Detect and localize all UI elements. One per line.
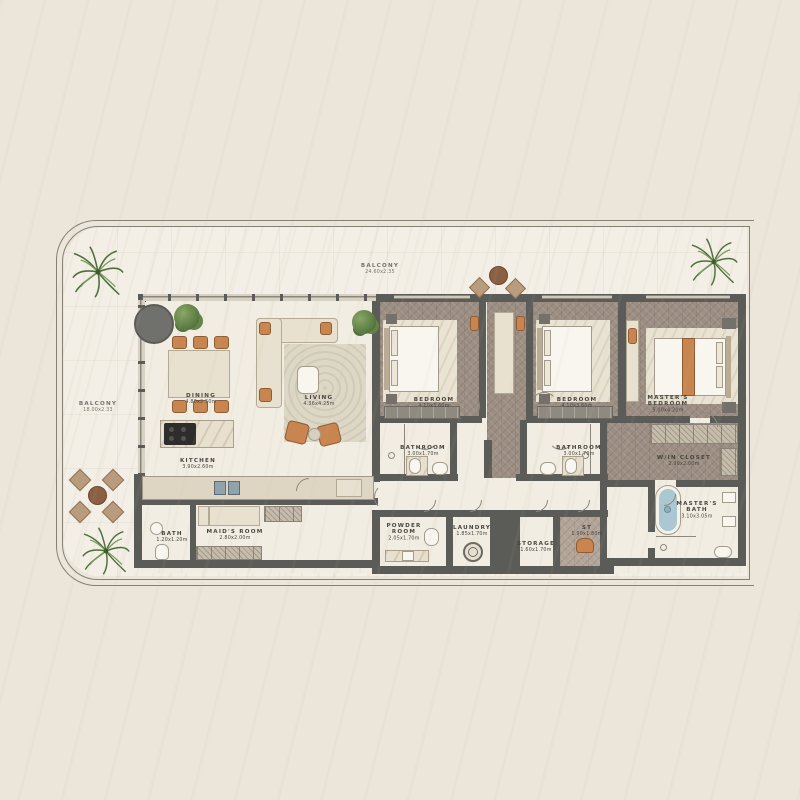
maid-wardrobe: [196, 546, 262, 560]
room-dims: 24.60x2.35: [340, 269, 420, 275]
shower-glass: [656, 536, 696, 537]
toilet: [714, 546, 732, 558]
room-name: ST: [547, 524, 627, 530]
hall-console: [494, 312, 514, 394]
wall-bottom-left: [134, 560, 378, 568]
bedroom-1-window: [394, 295, 470, 299]
dining-chair: [214, 336, 229, 349]
pillow: [716, 342, 723, 364]
pillow: [716, 366, 723, 388]
maid-closet: [264, 506, 302, 522]
kitchen-sink: [214, 481, 226, 495]
maid-bath-toilet: [155, 544, 169, 560]
balcony-table: [489, 266, 508, 285]
palm-plant-icon: [72, 246, 124, 298]
wall-maid-left: [134, 474, 142, 568]
room-dims: 4.10x3.60m: [537, 403, 617, 409]
door-arc: [374, 484, 400, 510]
cooktop: [164, 423, 196, 445]
room-name: BALCONY: [58, 400, 138, 406]
room-name: MAID'S ROOM: [195, 528, 275, 534]
wall-bath2-left: [520, 420, 527, 478]
room-name: W/IN CLOSET: [644, 454, 724, 460]
balcony-top-label: BALCONY 24.60x2.35: [340, 262, 420, 275]
toilet: [432, 462, 448, 475]
dining-chair: [172, 336, 187, 349]
room-dims: 3.00x1.70m: [383, 451, 463, 457]
sink: [565, 458, 577, 474]
wall-corridor-mid: [484, 440, 492, 478]
kitchen-sink: [228, 481, 240, 495]
dining-chair: [193, 336, 208, 349]
room-name: KITCHEN: [158, 457, 238, 463]
wall-bed1-right: [479, 300, 486, 418]
coffee-table: [297, 366, 319, 394]
laundry-label: LAUNDRY 1.85x1.70m: [432, 524, 512, 537]
pillow: [391, 360, 398, 386]
floor-plan: BALCONY 24.60x2.35 BALCONY 18.00x2.33 DI…: [0, 0, 800, 800]
wall-bed2-right: [618, 294, 626, 420]
bench-stool: [628, 328, 637, 344]
side-table: [308, 428, 321, 441]
pillow: [391, 330, 398, 356]
room-dims: 2.90x2.00m: [644, 461, 724, 467]
pillow: [544, 360, 551, 386]
room-dims: 1.85x1.70m: [432, 531, 512, 537]
dining-label: DINING 4.80x2.50m: [161, 392, 241, 405]
bathroom-2-label: BATHROOM 3.00x1.70m: [539, 444, 619, 457]
living-label: LIVING 4.36x4.25m: [279, 394, 359, 407]
room-dims: 1.60x1.70m: [496, 547, 576, 553]
nightstand: [722, 318, 736, 329]
shower-head-icon: [660, 544, 667, 551]
round-table: [134, 304, 174, 344]
room-dims: 4.36x4.25m: [279, 401, 359, 407]
room-name: BALCONY: [340, 262, 420, 268]
room-dims: 3.00x1.70m: [539, 451, 619, 457]
wall-mbath-top-a: [600, 480, 655, 487]
room-name: BEDROOM: [394, 396, 474, 402]
dining-table: [168, 350, 230, 398]
maids-bath-label: BATH 1.20x1.20m: [140, 530, 204, 543]
bed-runner: [682, 338, 695, 396]
nightstand: [722, 402, 736, 413]
room-dims: 1.90x1.80m: [547, 531, 627, 537]
wall-closet-left: [600, 416, 607, 566]
room-dims: 4.10x3.60m: [394, 403, 474, 409]
maids-room-label: MAID'S ROOM 2.80x2.00m: [195, 528, 275, 541]
room-dims: 5.00x4.20m: [628, 408, 708, 414]
wall-bottom-right: [606, 558, 746, 566]
room-name: STORAGE: [496, 540, 576, 546]
bathroom-1-label: BATHROOM 3.00x1.70m: [383, 444, 463, 457]
palm-plant-icon: [690, 238, 738, 286]
bench-stool: [470, 316, 479, 331]
room-name: MASTER'S BATH: [657, 500, 737, 513]
maid-bed-pillow-line: [208, 507, 210, 525]
room-name: POWDER ROOM: [372, 522, 436, 535]
sink: [402, 551, 414, 561]
wall-mbath-left-b: [648, 548, 655, 562]
room-name: MASTER'S BEDROOM: [628, 394, 708, 407]
powder-room-label: POWDER ROOM 2.05x1.70m: [372, 522, 436, 541]
room-dims: 18.00x2.33: [58, 407, 138, 413]
room-name: DINING: [161, 392, 241, 398]
masters-bath-label: MASTER'S BATH 3.10x3.05m: [657, 500, 737, 519]
burner-icon: [169, 427, 174, 432]
indoor-plant: [174, 304, 200, 330]
room-dims: 4.80x2.50m: [161, 399, 241, 405]
bench-stool: [516, 316, 525, 331]
sofa-cushion: [259, 322, 271, 335]
nightstand: [386, 314, 397, 324]
room-dims: 3.10x3.05m: [657, 514, 737, 520]
room-name: BATHROOM: [539, 444, 619, 450]
sofa-cushion: [259, 388, 272, 402]
walk-in-closet-label: W/IN CLOSET 2.90x2.00m: [644, 454, 724, 467]
room-name: LAUNDRY: [432, 524, 512, 530]
bedroom-2-label: BEDROOM 4.10x3.60m: [537, 396, 617, 409]
pillow: [544, 330, 551, 356]
room-dims: 2.80x2.00m: [195, 535, 275, 541]
wall-mbath-top-b: [676, 480, 746, 487]
room-name: BEDROOM: [537, 396, 617, 402]
bedroom-1-label: BEDROOM 4.10x3.60m: [394, 396, 474, 409]
room-name: BATHROOM: [383, 444, 463, 450]
washing-machine-door-icon: [468, 547, 478, 557]
balcony-table: [88, 486, 107, 505]
wall-shaft: [490, 510, 520, 568]
room-name: BATH: [140, 530, 204, 536]
master-window: [646, 295, 730, 299]
room-dims: 2.05x1.70m: [372, 536, 436, 542]
master-bedroom-label: MASTER'S BEDROOM 5.00x4.20m: [628, 394, 708, 413]
st-label: ST 1.90x1.80m: [547, 524, 627, 537]
wall-right: [738, 294, 746, 566]
armchair: [576, 538, 594, 553]
storage-label: STORAGE 1.60x1.70m: [496, 540, 576, 553]
living-window-top: [140, 294, 376, 301]
nightstand: [539, 314, 550, 324]
palm-plant-icon: [82, 527, 130, 575]
bed-headboard: [726, 336, 731, 398]
wall-under-master-a: [626, 416, 690, 423]
refrigerator: [336, 479, 362, 497]
indoor-plant: [352, 310, 376, 334]
sofa-cushion: [320, 322, 332, 335]
kitchen-label: KITCHEN 3.90x2.60m: [158, 457, 238, 470]
room-dims: 3.90x2.60m: [158, 464, 238, 470]
sink: [409, 458, 421, 474]
room-dims: 1.20x1.20m: [140, 537, 204, 543]
bedroom-2-window: [542, 295, 612, 299]
toilet: [540, 462, 556, 475]
room-name: LIVING: [279, 394, 359, 400]
balcony-left-label: BALCONY 18.00x2.33: [58, 400, 138, 413]
wall-powder-laundry: [446, 510, 453, 568]
